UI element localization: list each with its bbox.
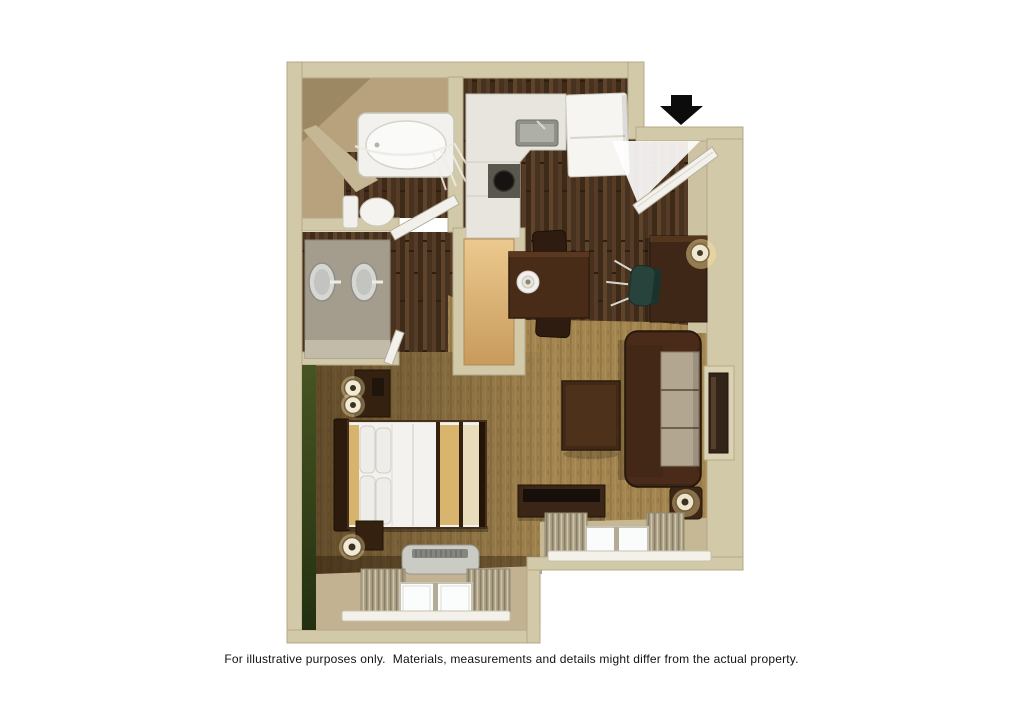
bed-trim-line bbox=[436, 422, 440, 528]
toilet-tank bbox=[343, 196, 358, 228]
entry-direction-arrow-icon bbox=[660, 95, 703, 125]
bedroom-window-sill bbox=[342, 611, 510, 621]
footboard bbox=[479, 420, 486, 528]
wall-bedroom-bottom bbox=[287, 630, 540, 643]
refrigerator bbox=[566, 93, 630, 177]
table-lamp-1-finial bbox=[350, 385, 356, 391]
living-window-sill bbox=[548, 551, 711, 561]
table-lamp-3-finial bbox=[349, 544, 356, 551]
wall-top bbox=[287, 62, 644, 78]
vanity-area bbox=[305, 240, 404, 365]
coffee-table-top bbox=[566, 385, 616, 446]
vanity-sink-left-basin bbox=[314, 269, 330, 295]
sofa-back bbox=[627, 345, 663, 477]
vanity-sink-right-basin bbox=[356, 269, 372, 295]
toilet-bowl bbox=[360, 198, 394, 226]
living-curtain-right bbox=[647, 513, 684, 554]
floor-plan-rendering bbox=[0, 0, 1023, 716]
media-console-top bbox=[523, 489, 600, 502]
disclaimer-caption: For illustrative purposes only. Material… bbox=[0, 652, 1023, 666]
side-lamp-finial bbox=[682, 499, 689, 506]
green-accent-wall bbox=[302, 365, 316, 630]
wardrobe-closet bbox=[464, 239, 514, 365]
bed-trim-line-2 bbox=[459, 422, 463, 528]
bed-runner-cream bbox=[463, 425, 479, 525]
cushion-shading bbox=[693, 352, 699, 466]
bed-head-runner bbox=[349, 425, 359, 525]
bed-runner-gold bbox=[440, 425, 459, 525]
tv-panel-reflection bbox=[711, 377, 716, 449]
table-lamp-2-finial bbox=[350, 402, 356, 408]
headboard bbox=[334, 419, 349, 531]
ptac-vent bbox=[412, 549, 468, 558]
bathtub-drain bbox=[375, 143, 380, 148]
place-setting-center bbox=[526, 280, 531, 285]
bedroom-curtain-right bbox=[467, 569, 510, 616]
kitchen-sink-basin bbox=[520, 124, 554, 142]
living-curtain-left bbox=[545, 513, 587, 556]
cooktop-burner bbox=[494, 171, 514, 191]
wall-left bbox=[287, 62, 302, 643]
bedroom-window-mullion bbox=[433, 583, 438, 615]
vanity-cabinet-front bbox=[305, 340, 390, 358]
floor-plan-page: For illustrative purposes only. Material… bbox=[0, 0, 1023, 716]
nightstand-item bbox=[372, 378, 384, 396]
dining-table-edge bbox=[509, 252, 589, 257]
wall-right bbox=[707, 139, 743, 570]
desk-lamp-finial bbox=[697, 250, 703, 256]
